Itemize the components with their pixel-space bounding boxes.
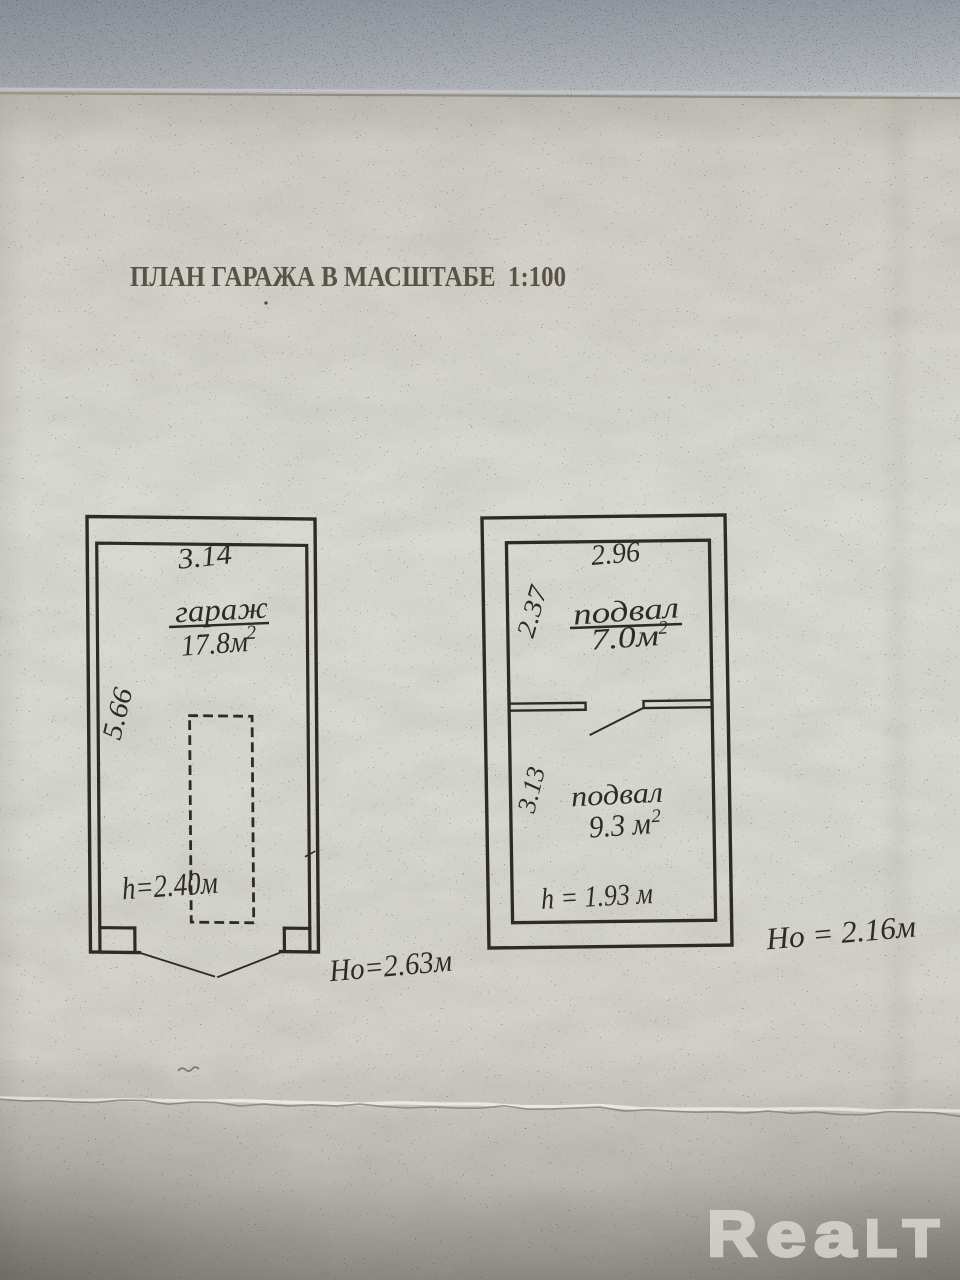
svg-text:2: 2 [245,621,257,644]
svg-text:9.3 м: 9.3 м [588,805,652,844]
svg-text:17.8м: 17.8м [180,625,249,663]
svg-text:3.14: 3.14 [175,538,233,576]
svg-text:a: a [814,1201,857,1270]
svg-text:T: T [903,1210,939,1268]
svg-text:7.0м: 7.0м [590,619,660,657]
svg-text:R: R [707,1198,757,1270]
svg-text:2.96: 2.96 [590,536,642,572]
svg-text:e: e [766,1201,806,1270]
svg-text:L: L [865,1210,897,1268]
svg-text:h=2.40м: h=2.40м [121,864,219,907]
svg-text:h = 1.93 м: h = 1.93 м [540,877,654,916]
svg-text:ПЛАН ГАРАЖА В МАСШТАБЕ 1:100: ПЛАН ГАРАЖА В МАСШТАБЕ 1:100 [130,261,566,293]
